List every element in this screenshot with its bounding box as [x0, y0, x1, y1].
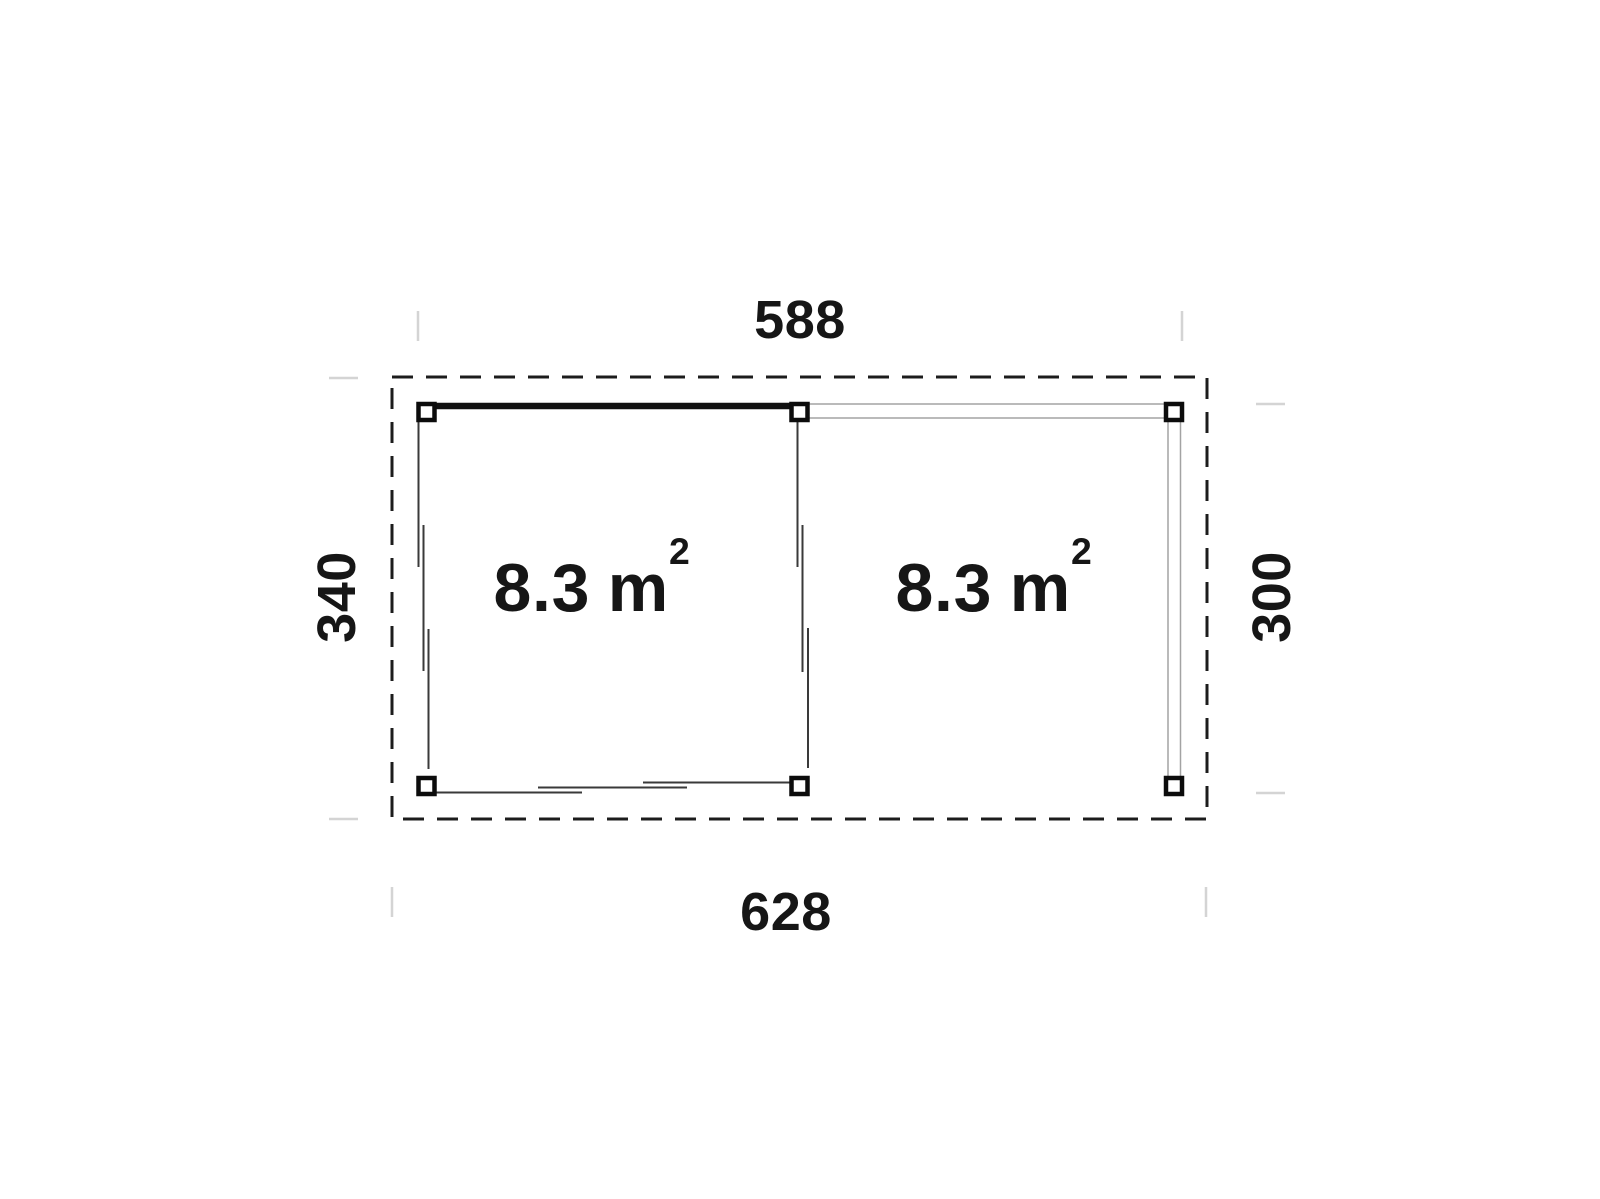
- post-top-middle: [792, 404, 808, 420]
- area-value: 8.3: [494, 550, 591, 626]
- room-area-label-right: 8.3m2: [896, 554, 1093, 622]
- dimension-label-top: 588: [754, 293, 846, 347]
- post-bottom-left: [419, 778, 435, 794]
- post-bottom-middle: [792, 778, 808, 794]
- area-unit: m: [608, 550, 669, 626]
- dimension-label-bottom: 628: [740, 885, 832, 939]
- area-value: 8.3: [896, 550, 993, 626]
- floor-plan-canvas: 588 628 340 300 8.3m2 8.3m2: [0, 0, 1600, 1199]
- floor-plan-drawing: [0, 0, 1600, 1199]
- dimension-label-left: 340: [310, 551, 364, 643]
- area-unit: m: [1010, 550, 1071, 626]
- area-unit-exponent: 2: [1071, 530, 1092, 572]
- post-bottom-right: [1166, 778, 1182, 794]
- post-top-left: [419, 404, 435, 420]
- area-unit-exponent: 2: [669, 530, 690, 572]
- room-area-label-left: 8.3m2: [494, 554, 691, 622]
- dimension-label-right: 300: [1245, 551, 1299, 643]
- post-top-right: [1166, 404, 1182, 420]
